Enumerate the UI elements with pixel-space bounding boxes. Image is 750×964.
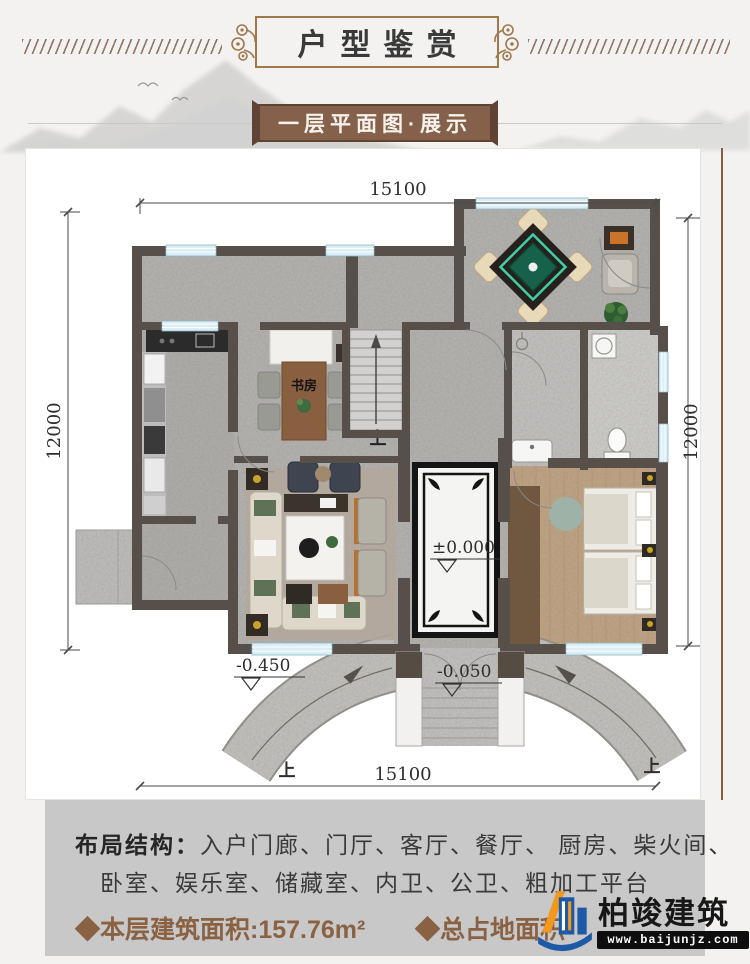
bed-2: [584, 552, 658, 614]
dimension-left: 12000: [44, 402, 65, 459]
svg-text:-0.050: -0.050: [437, 662, 491, 682]
living-room-sofa-set: [246, 462, 396, 640]
fireplace: [604, 226, 634, 250]
wardrobe: [508, 486, 540, 644]
study-room-label: 书房: [291, 378, 317, 393]
svg-text:-0.450: -0.450: [236, 656, 290, 676]
window: [252, 643, 332, 655]
dimension-right: 12000: [681, 403, 702, 460]
window: [166, 245, 216, 256]
window: [659, 424, 668, 462]
window: [162, 321, 218, 331]
window: [566, 643, 642, 655]
window: [326, 245, 374, 256]
dimension-top: 15100: [369, 179, 426, 200]
ramp-up-right-label: 上: [644, 757, 661, 777]
dimension-bottom: 15100: [374, 764, 431, 785]
bedroom-rug: [549, 497, 583, 531]
svg-text:±0.000: ±0.000: [432, 538, 495, 558]
page: 户型鉴赏 一层平面图·展示: [0, 0, 750, 964]
floor-plan: 书房 上: [0, 0, 750, 964]
window: [659, 352, 668, 392]
ramp-up-left-label: 上: [279, 761, 296, 781]
stairs: [350, 330, 402, 430]
bed-1: [584, 488, 658, 550]
